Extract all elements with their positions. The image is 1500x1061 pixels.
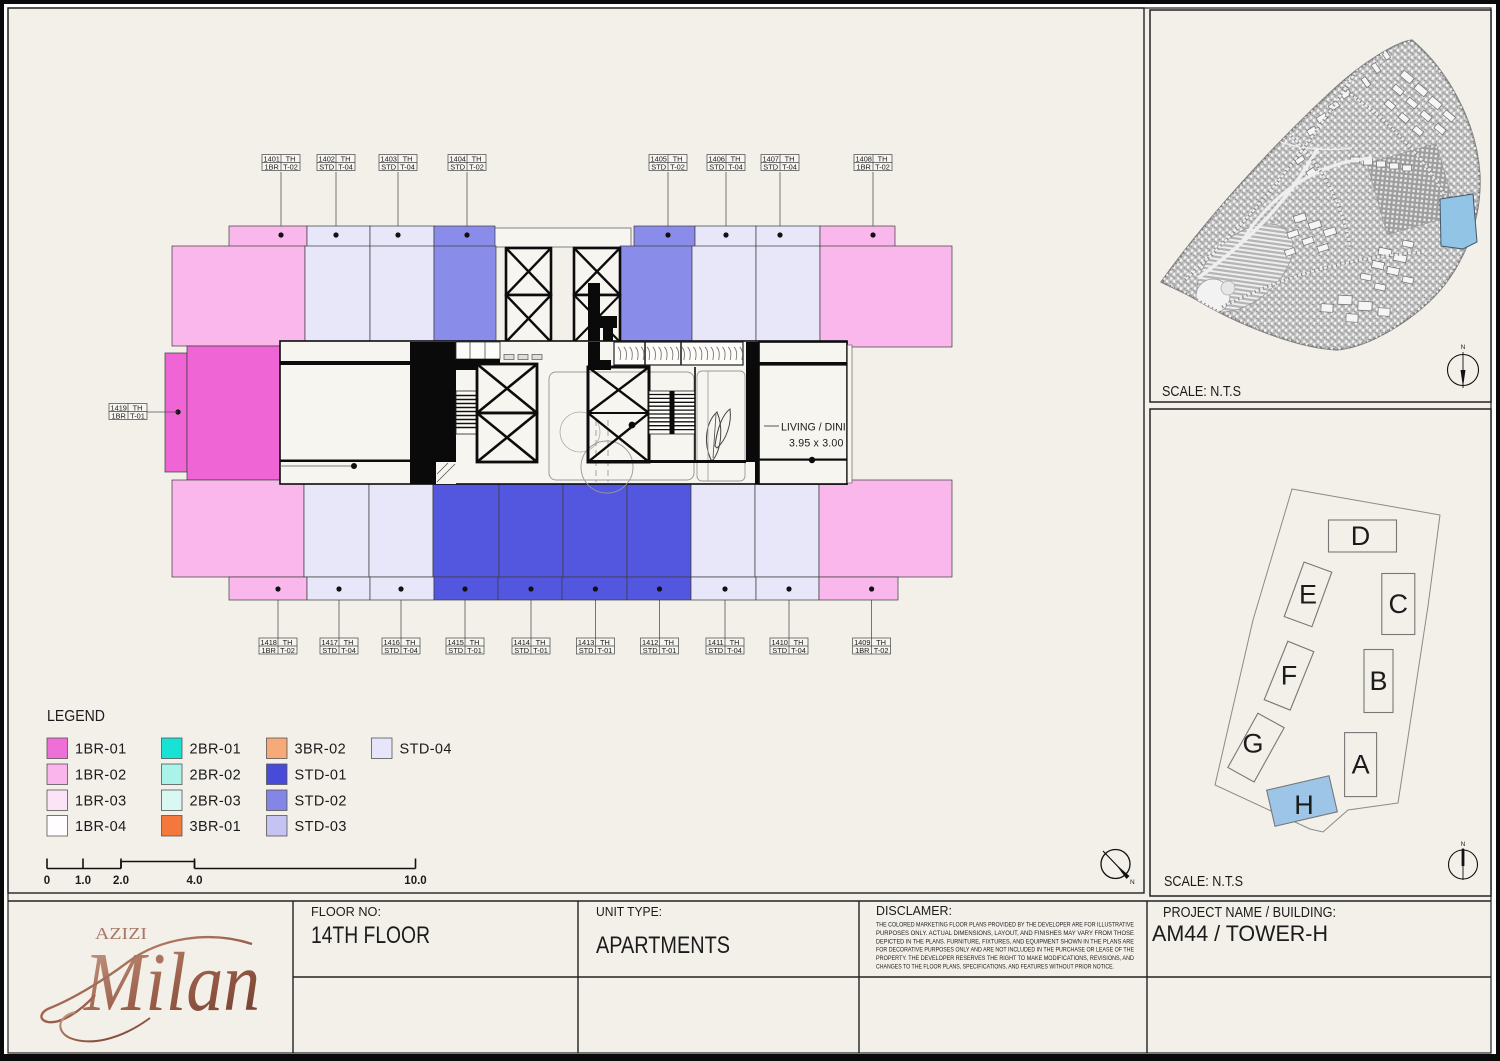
svg-text:2BR-02: 2BR-02 [190,768,242,784]
svg-text:STD: STD [322,646,337,655]
svg-text:T-02: T-02 [469,162,484,171]
svg-text:T-02: T-02 [280,646,295,655]
svg-text:Milan: Milan [83,936,260,1029]
svg-text:1BR-01: 1BR-01 [75,742,127,758]
svg-text:STD: STD [763,162,778,171]
svg-text:1BR-03: 1BR-03 [75,794,127,810]
svg-text:T-04: T-04 [400,162,415,171]
svg-text:STD: STD [579,646,594,655]
svg-text:T-04: T-04 [341,646,356,655]
svg-text:T-04: T-04 [403,646,418,655]
svg-text:THE COLORED MARKETING FLOOR PL: THE COLORED MARKETING FLOOR PLANS PROVID… [876,922,1134,929]
svg-text:APARTMENTS: APARTMENTS [596,932,730,959]
svg-text:T-02: T-02 [874,646,889,655]
svg-text:4.0: 4.0 [187,875,203,887]
svg-text:3BR-02: 3BR-02 [295,742,347,758]
svg-text:SCALE: N.T.S: SCALE: N.T.S [1164,874,1243,890]
svg-text:STD: STD [514,646,529,655]
svg-text:STD-03: STD-03 [295,819,347,835]
svg-text:1BR: 1BR [112,411,126,420]
svg-text:T-02: T-02 [670,162,685,171]
svg-text:LEGEND: LEGEND [47,708,105,725]
svg-text:STD: STD [708,646,723,655]
svg-text:2.0: 2.0 [113,875,129,887]
svg-text:1BR: 1BR [265,162,279,171]
svg-text:T-04: T-04 [728,162,743,171]
svg-text:10.0: 10.0 [404,875,426,887]
svg-text:DISCLAMER:: DISCLAMER: [876,903,952,918]
svg-text:1BR: 1BR [855,646,869,655]
svg-text:T-01: T-01 [533,646,548,655]
svg-text:FOR DECORATIVE PURPOSES ONLY A: FOR DECORATIVE PURPOSES ONLY AND ARE NOT… [876,947,1134,954]
svg-text:T-02: T-02 [875,162,890,171]
svg-text:3.95 x 3.00: 3.95 x 3.00 [789,438,844,450]
svg-text:F: F [1281,661,1298,691]
svg-text:PURPOSES ONLY. ACTUAL DIMENSIO: PURPOSES ONLY. ACTUAL DIMENSIONS, LAYOUT… [876,930,1134,937]
svg-text:T-01: T-01 [467,646,482,655]
svg-text:H: H [1294,790,1314,820]
svg-text:14TH FLOOR: 14TH FLOOR [311,922,430,949]
svg-text:D: D [1351,521,1371,551]
svg-text:1BR-02: 1BR-02 [75,768,127,784]
svg-text:G: G [1242,729,1263,759]
svg-text:0: 0 [44,875,50,887]
svg-text:1BR: 1BR [262,646,276,655]
svg-text:STD: STD [651,162,666,171]
svg-text:N: N [1461,344,1466,351]
svg-text:2BR-03: 2BR-03 [190,794,242,810]
svg-text:T-04: T-04 [338,162,353,171]
svg-text:STD: STD [381,162,396,171]
svg-text:T-01: T-01 [598,646,613,655]
svg-text:N: N [1461,841,1466,848]
svg-text:T-02: T-02 [283,162,298,171]
svg-text:STD: STD [448,646,463,655]
svg-text:UNIT TYPE:: UNIT TYPE: [596,905,662,919]
svg-text:1.0: 1.0 [75,875,91,887]
svg-text:1BR-04: 1BR-04 [75,819,127,835]
svg-text:SCALE: N.T.S: SCALE: N.T.S [1162,384,1241,400]
svg-text:STD: STD [772,646,787,655]
svg-text:E: E [1299,579,1317,609]
svg-text:DEPICTED IN THE PLANS. FURNITU: DEPICTED IN THE PLANS. FURNITURE, FIXTUR… [876,938,1134,945]
svg-text:AM44 / TOWER-H: AM44 / TOWER-H [1152,921,1328,946]
svg-text:STD: STD [643,646,658,655]
svg-text:FLOOR NO:: FLOOR NO: [311,905,381,919]
svg-text:STD-04: STD-04 [400,742,452,758]
svg-text:PROPERTY. THE DEVELOPER RESERV: PROPERTY. THE DEVELOPER RESERVES THE RIG… [876,955,1134,962]
svg-text:2BR-01: 2BR-01 [190,742,242,758]
svg-text:CHANGES TO THE FLOOR PLANS, SP: CHANGES TO THE FLOOR PLANS, SPECIFICATIO… [876,964,1114,971]
svg-text:3BR-01: 3BR-01 [190,819,242,835]
svg-text:T-04: T-04 [727,646,742,655]
svg-text:PROJECT NAME / BUILDING:: PROJECT NAME / BUILDING: [1163,904,1336,921]
svg-text:T-01: T-01 [130,411,145,420]
svg-text:B: B [1369,666,1387,696]
svg-text:STD: STD [384,646,399,655]
svg-text:STD-02: STD-02 [295,794,347,810]
svg-text:N: N [1130,879,1135,886]
svg-text:T-04: T-04 [791,646,806,655]
svg-text:STD: STD [319,162,334,171]
svg-text:STD: STD [709,162,724,171]
svg-text:T-01: T-01 [662,646,677,655]
svg-text:STD: STD [450,162,465,171]
svg-text:A: A [1352,750,1370,780]
svg-text:STD-01: STD-01 [295,768,347,784]
svg-text:T-04: T-04 [782,162,797,171]
svg-text:C: C [1389,589,1409,619]
svg-text:1BR: 1BR [857,162,871,171]
